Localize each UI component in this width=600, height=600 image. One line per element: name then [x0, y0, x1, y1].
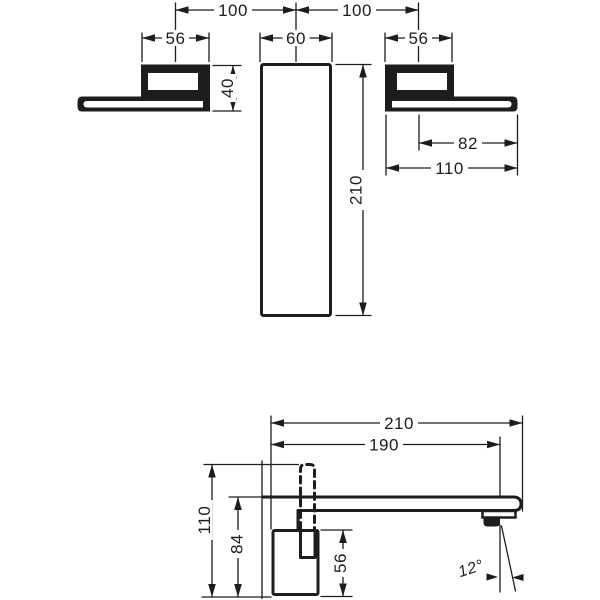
dim-label-left-spacing: 100: [218, 1, 248, 20]
dim-label-right-handle-width: 56: [409, 29, 429, 48]
dim-label-handle-height: 40: [218, 78, 237, 98]
dim-label-left-handle-width: 56: [166, 29, 186, 48]
dim-label-below-spout-height: 84: [228, 534, 247, 554]
dim-label-aerator-offset: 190: [369, 436, 399, 455]
aerator-nozzle: [484, 518, 501, 527]
handle-shaft-solid: [301, 531, 316, 558]
aerator-flange: [483, 511, 516, 518]
drawing-svg: 100 100 56 60: [0, 0, 600, 600]
spout-plate: [262, 65, 331, 316]
dim-label-spout-plate-width: 60: [286, 29, 306, 48]
dim-label-spout-plate-height: 210: [347, 175, 366, 205]
dim-label-handle-reach: 110: [435, 159, 464, 178]
dim-label-lever-reach: 82: [458, 134, 478, 153]
technical-drawing: 100 100 56 60: [0, 0, 600, 600]
dim-label-spout-reach: 210: [384, 414, 414, 433]
dim-label-right-spacing: 100: [342, 1, 372, 20]
dim-label-overall-height: 110: [195, 506, 214, 535]
dim-label-valve-body-height: 56: [331, 553, 350, 573]
